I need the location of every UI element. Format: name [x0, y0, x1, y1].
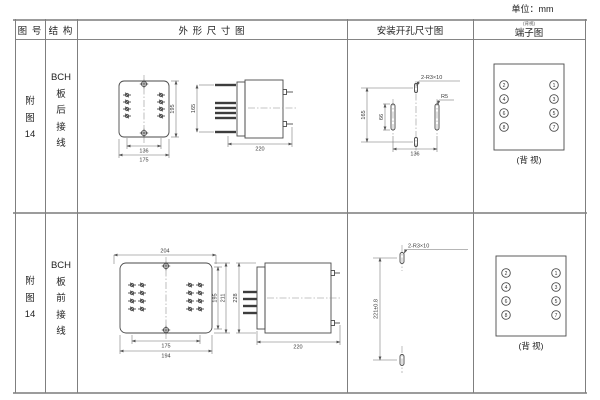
- row-divider: [13, 212, 587, 214]
- row2-structure-line: BCH: [51, 258, 71, 275]
- row2-outline-drawing: 204 195 211 175 194 228 220: [95, 242, 345, 372]
- terminal-number: 1: [555, 271, 558, 277]
- row1-terminal-body: [494, 64, 564, 150]
- terminal-number: 4: [503, 97, 506, 103]
- row1-terminal-numbers: 2 4 6 8 1 3 5 7: [503, 83, 556, 131]
- dim-label-195: 195: [170, 104, 176, 113]
- table-right-border: [585, 19, 586, 393]
- row2-install-drawing: 221±0.8 2-R3×10: [350, 232, 475, 387]
- row2-fig-line: 14: [25, 307, 36, 324]
- row1-structure-line: BCH: [51, 70, 71, 87]
- terminal-number: 6: [505, 299, 508, 305]
- row1-terminal-diagram: 2 4 6 8 1 3 5 7 (背 视): [480, 58, 585, 170]
- row1-fig-number: 附 图 14: [25, 94, 36, 144]
- terminal-number: 2: [505, 271, 508, 277]
- terminal-number: 3: [553, 97, 556, 103]
- row1-rear-view-caption: (背 视): [516, 155, 541, 165]
- row1-fig-line: 附: [25, 94, 35, 111]
- dim-label-175: 175: [139, 158, 148, 164]
- header-structure: 结 构: [49, 23, 74, 37]
- row1-outline-drawing: 136 175 195 165 220: [95, 48, 345, 208]
- col-divider-structure: [77, 19, 78, 393]
- dim-label-slot-spec2: 2-R3×10: [408, 244, 429, 250]
- row2-structure: BCH 板 前 接 线: [51, 258, 71, 341]
- dim-label-211: 211: [221, 294, 227, 303]
- dim-label-slot-66: 66: [379, 114, 385, 120]
- dim-label-228: 228: [233, 293, 239, 302]
- row2-terminal-diagram: 2 4 6 8 1 3 5 7 (背 视): [480, 248, 585, 360]
- dim-label-220b: 220: [293, 345, 302, 351]
- row2-terminal-body: [496, 256, 566, 336]
- unit-note: 单位：mm: [490, 2, 575, 15]
- dim-label-194: 194: [161, 354, 170, 360]
- header-fig: 图 号: [18, 23, 43, 37]
- row1-install-slots: [391, 84, 439, 147]
- row2-fig-number: 附 图 14: [25, 274, 36, 324]
- dim-label-195b: 195: [213, 293, 219, 302]
- terminal-number: 8: [505, 313, 508, 319]
- row2-side-view: [243, 263, 340, 333]
- row2-outline-dimensions: 204 195 211 175 194 228 220: [114, 249, 340, 360]
- row1-structure-line: 后: [56, 103, 66, 120]
- dim-label-r5: R5: [441, 94, 448, 100]
- col-divider-fig: [45, 19, 46, 393]
- table-left-border: [15, 19, 16, 393]
- terminal-number: 3: [555, 285, 558, 291]
- dim-label-install-136: 136: [410, 152, 419, 158]
- row1-fig-line: 图: [25, 111, 35, 128]
- row1-structure: BCH 板 后 接 线: [51, 70, 71, 153]
- dim-label-136: 136: [139, 149, 148, 155]
- technical-drawing-page: 单位：mm 图 号 结 构 外 形 尺 寸 图 安装开孔尺寸图 (背视) 端子图…: [0, 0, 600, 400]
- terminal-number: 2: [503, 83, 506, 89]
- terminal-number: 5: [555, 299, 558, 305]
- row1-install-dimensions: 165 66 136 2-R3×10 R5: [361, 75, 460, 158]
- dim-label-221: 221±0.8: [374, 299, 380, 319]
- header-install: 安装开孔尺寸图: [377, 23, 444, 37]
- dim-label-220: 220: [255, 147, 264, 153]
- row2-install-dimensions: 221±0.8 2-R3×10: [373, 244, 468, 361]
- table-top-border: [13, 19, 587, 21]
- row1-side-view: [215, 80, 293, 138]
- row1-structure-line: 线: [56, 136, 66, 153]
- terminal-number: 6: [503, 111, 506, 117]
- row2-structure-line: 板: [56, 275, 66, 292]
- row1-outline-dimensions: 136 175 195 165 220: [119, 81, 292, 164]
- header-outline: 外 形 尺 寸 图: [178, 23, 245, 37]
- table-bottom-border: [13, 392, 587, 394]
- dim-label-175b: 175: [161, 344, 170, 350]
- row2-structure-line: 前: [56, 291, 66, 308]
- dim-label-204: 204: [160, 249, 169, 255]
- row2-structure-line: 接: [56, 308, 66, 325]
- row1-install-drawing: 165 66 136 2-R3×10 R5: [350, 55, 475, 180]
- row2-structure-line: 线: [56, 324, 66, 341]
- dim-label-165: 165: [191, 104, 197, 113]
- row2-fig-line: 附: [25, 274, 35, 291]
- terminal-number: 4: [505, 285, 508, 291]
- dim-label-slot-spec: 2-R3×10: [421, 75, 442, 81]
- col-divider-outline: [347, 19, 348, 393]
- row1-structure-line: 接: [56, 120, 66, 137]
- row1-structure-line: 板: [56, 87, 66, 104]
- row2-terminal-numbers: 2 4 6 8 1 3 5 7: [505, 271, 558, 319]
- terminal-number: 7: [553, 125, 556, 131]
- row1-fig-line: 14: [25, 127, 36, 144]
- row2-fig-line: 图: [25, 291, 35, 308]
- terminal-number: 8: [503, 125, 506, 131]
- terminal-number: 5: [553, 111, 556, 117]
- row2-rear-view-caption: (背 视): [518, 341, 543, 351]
- header-bottom-border: [15, 39, 585, 40]
- header-terminal: 端子图: [515, 25, 544, 39]
- terminal-number: 1: [553, 83, 556, 89]
- dim-label-install-165: 165: [361, 110, 367, 119]
- terminal-number: 7: [555, 313, 558, 319]
